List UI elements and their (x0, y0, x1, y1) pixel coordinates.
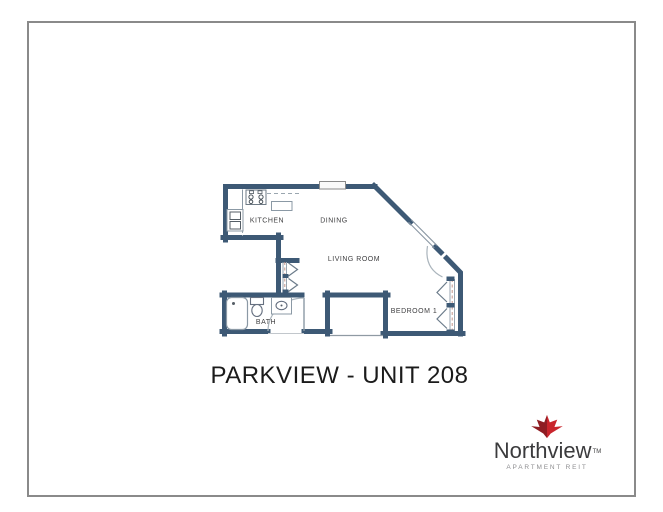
bedroom-closet (437, 277, 455, 335)
page: { "page": { "title": "PARKVIEW - UNIT 20… (0, 0, 663, 512)
maple-leaf-icon (527, 414, 567, 440)
bathroom-sink (272, 298, 292, 315)
bathtub (227, 298, 248, 330)
brand-name-text: Northview (494, 438, 592, 463)
brand-logo: NorthviewTM APARTMENT REIT (480, 414, 614, 471)
room-label-bath: BATH (256, 319, 276, 326)
kitchen-sink (227, 210, 243, 232)
dining-window (320, 182, 346, 190)
hall-closet (283, 262, 298, 294)
room-label-dining: DINING (320, 218, 348, 225)
brand-name: NorthviewTM (480, 441, 614, 461)
room-label-kitchen: KITCHEN (250, 218, 284, 225)
page-title: PARKVIEW - UNIT 208 (0, 362, 663, 390)
toilet (251, 298, 264, 317)
room-label-bedroom-1: BEDROOM 1 (391, 308, 438, 315)
room-label-living-room: LIVING ROOM (328, 256, 380, 263)
kitchen-stove (246, 190, 266, 205)
balcony-window (409, 220, 437, 248)
brand-tagline: APARTMENT REIT (480, 464, 614, 471)
brand-trademark: TM (593, 449, 602, 455)
